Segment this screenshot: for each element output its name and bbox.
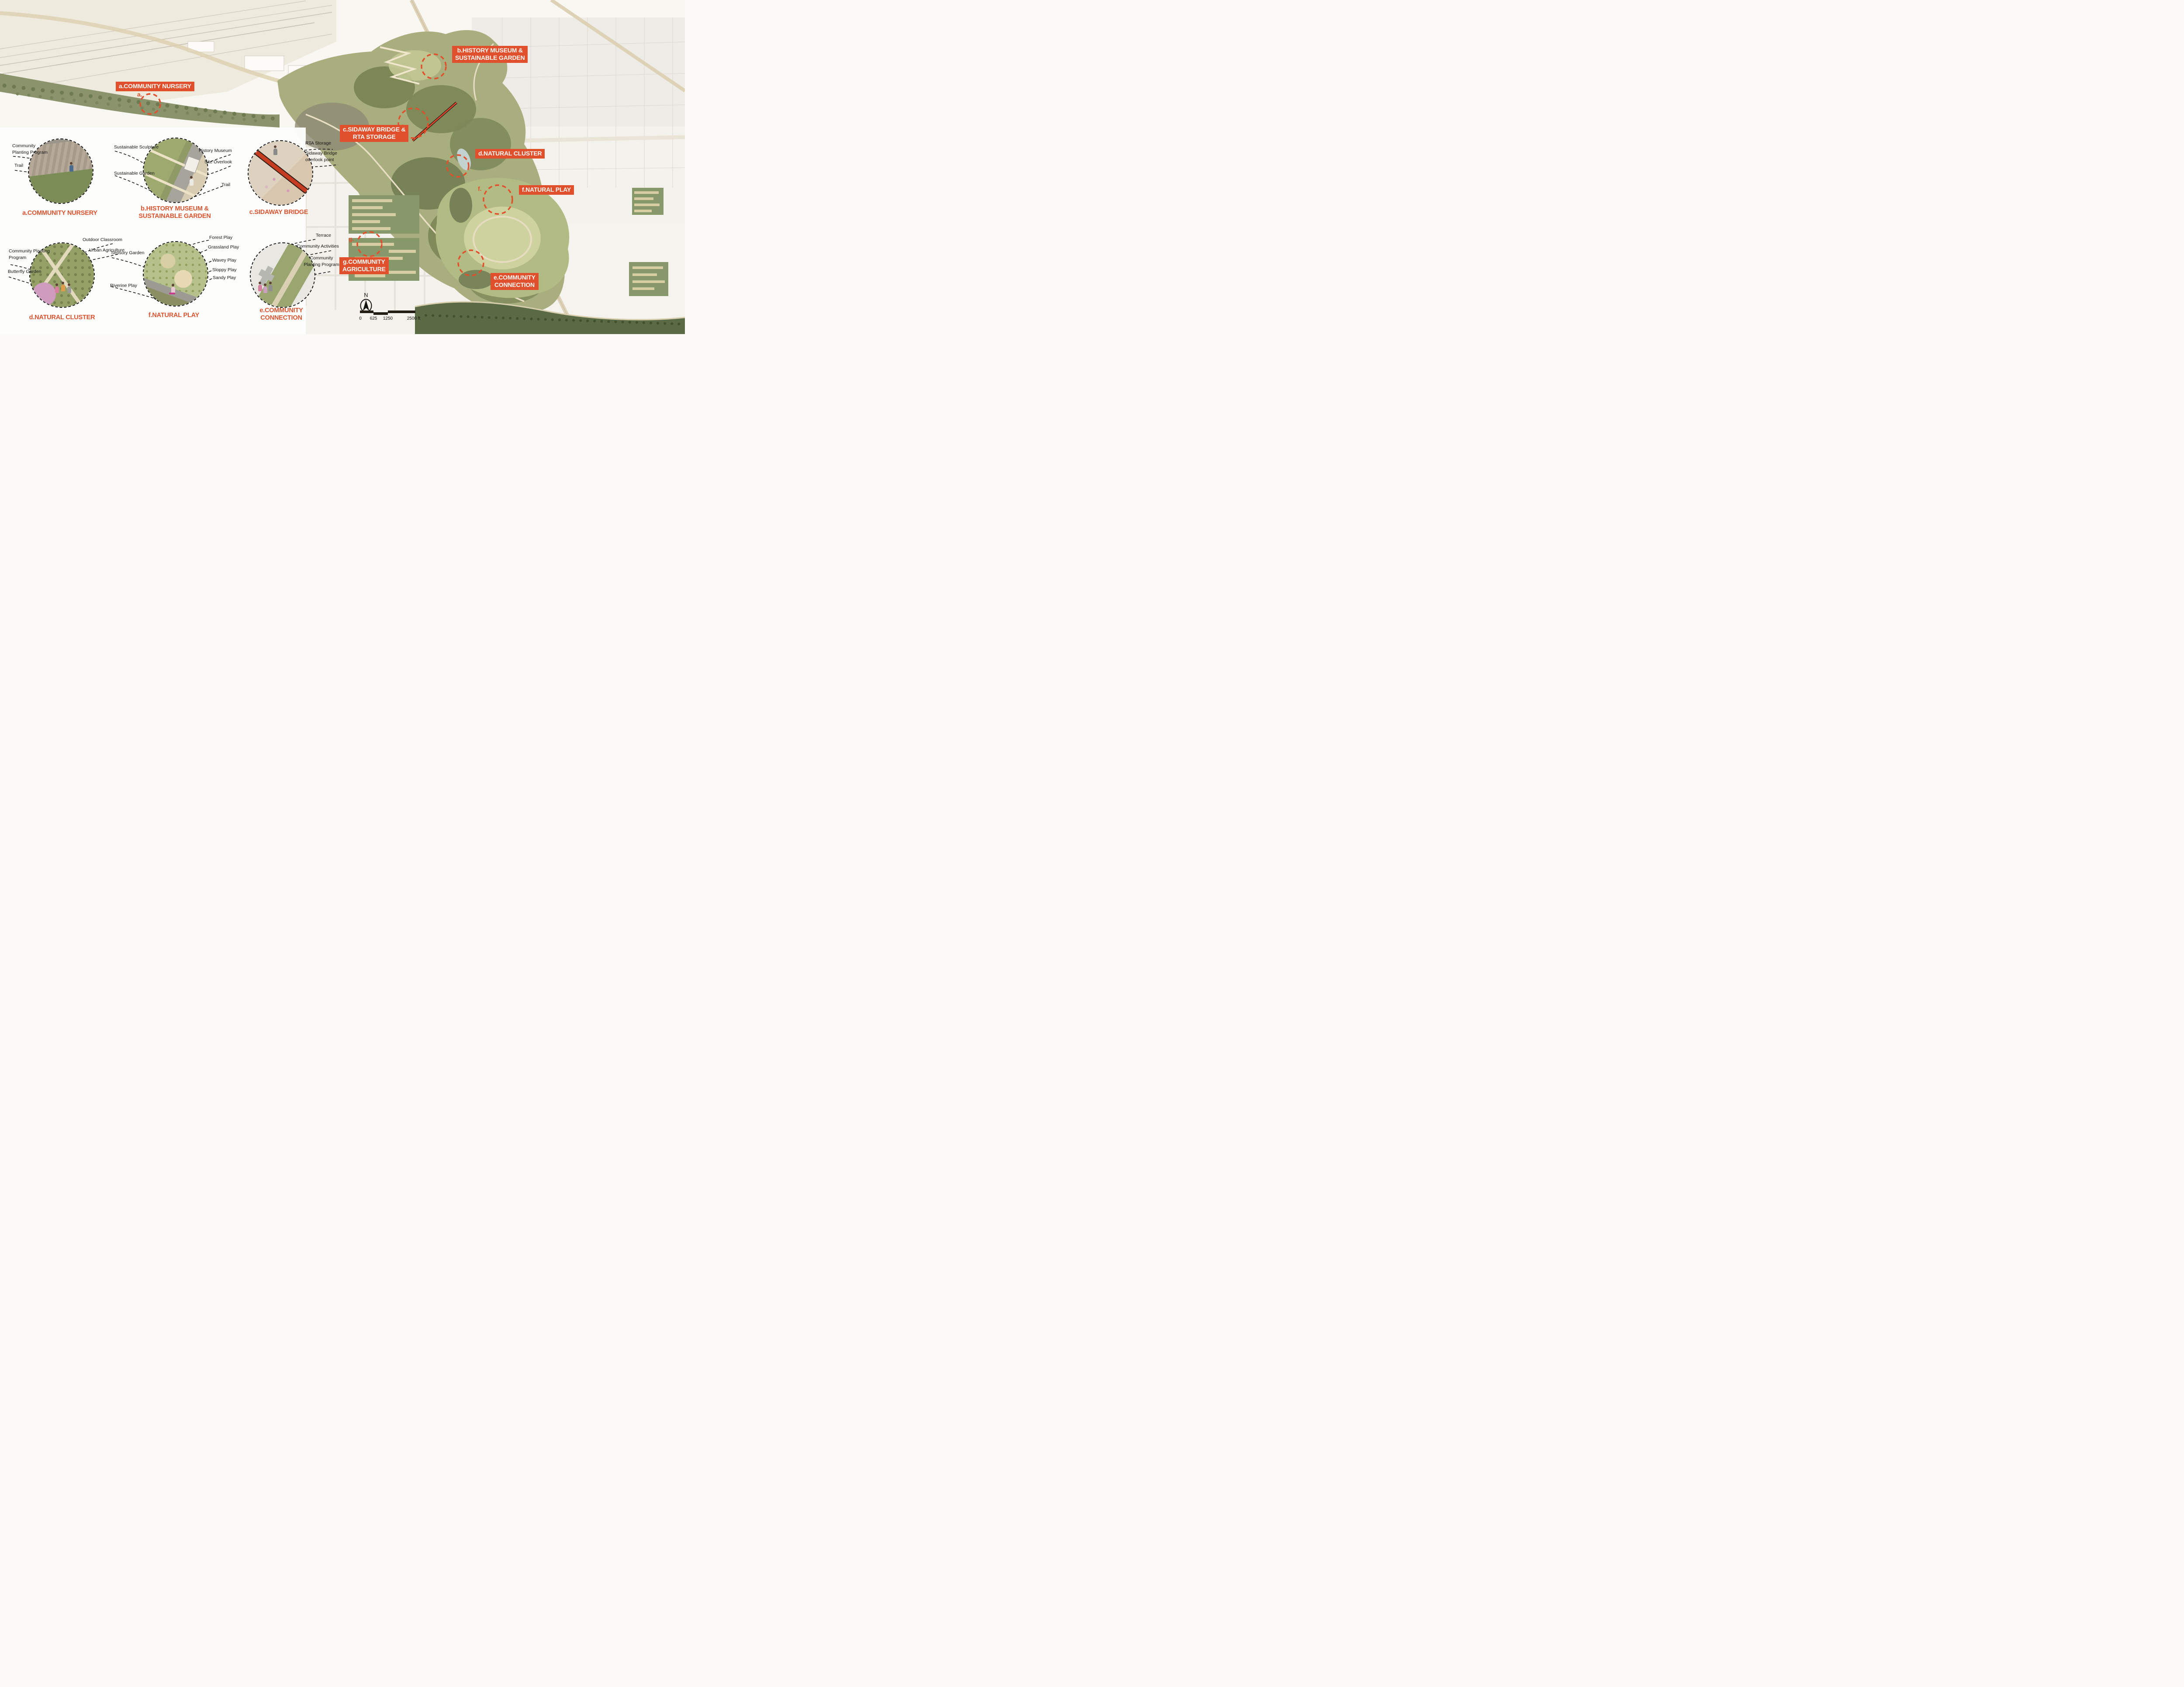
ann-e-terrace: Terrace	[316, 232, 331, 239]
ann-d-planting: Community Planting Program	[9, 248, 51, 261]
ann-f-sensory: Sensory Garden	[111, 250, 144, 256]
farmer-figure	[69, 162, 73, 172]
scale-segment	[373, 312, 388, 315]
ann-a-trail: Trail	[14, 162, 23, 169]
ann-b-museum: History Museum	[199, 148, 232, 154]
scale-tick: 625	[370, 316, 377, 321]
map-marker-g: g.	[349, 235, 354, 242]
north-label: N	[364, 292, 368, 298]
women-figure-3	[268, 282, 273, 291]
map-label-natural-play: f.NATURAL PLAY	[519, 185, 574, 195]
scale-tick: 1250	[383, 316, 393, 321]
map-marker-f: f.	[478, 185, 482, 192]
map-label-history-museum: b.HISTORY MUSEUM &SUSTAINABLE GARDEN	[452, 46, 528, 63]
ann-a-planting: Community Planting Program	[12, 143, 51, 155]
ann-b-sculpture: Sustainable Sculpture	[114, 144, 159, 151]
ann-f-forest: Forest Play	[209, 235, 232, 241]
map-marker-a: a.	[137, 91, 142, 98]
map-label-community-connection: e.COMMUNITYCONNECTION	[491, 273, 539, 290]
site-plan-artwork	[0, 0, 685, 334]
scale-tick: 2500 ft	[407, 316, 421, 321]
running-girl-figure	[189, 176, 194, 186]
ann-e-activities: Community Activities	[297, 243, 339, 250]
scale-bar: 0 625 1250 2500 ft	[360, 310, 421, 322]
museum-building	[183, 156, 200, 173]
scale-tick: 0	[359, 316, 362, 321]
ann-f-riverine: Riverine Play	[110, 283, 137, 289]
caption-community-nursery: a.COMMUNITY NURSERY	[22, 210, 97, 217]
caption-community-connection: e.COMMUNITYCONNECTION	[259, 307, 303, 322]
ann-b-trail: Trail	[221, 182, 230, 188]
masterplan-canvas: a.COMMUNITY NURSERY b.HISTORY MUSEUM &SU…	[0, 0, 685, 334]
sidaway-bridge-photo	[249, 141, 312, 205]
ann-f-wavey: Wavey Play	[212, 257, 236, 264]
caption-history-museum: b.HISTORY MUSEUM &SUSTAINABLE GARDEN	[138, 205, 211, 221]
caption-natural-play: f.NATURAL PLAY	[149, 312, 199, 319]
ann-d-butterfly: Butterfly Garden	[8, 269, 41, 275]
detail-circle-sidaway-bridge	[248, 140, 313, 206]
toddler-figure	[171, 284, 175, 293]
map-label-sidaway-bridge: c.SIDAWAY BRIDGE &RTA STORAGE	[340, 125, 408, 142]
map-label-community-nursery: a.COMMUNITY NURSERY	[116, 82, 194, 91]
detail-circle-community-connection	[250, 242, 315, 308]
bridge-red-deck	[249, 146, 311, 196]
community-connection-photo	[251, 243, 314, 307]
natural-play-photo	[144, 242, 207, 306]
page: a.COMMUNITY NURSERY b.HISTORY MUSEUM &SU…	[0, 0, 2184, 1065]
family-figure-2	[61, 282, 65, 291]
family-figure-3	[67, 283, 71, 293]
map-label-natural-cluster: d.NATURAL CLUSTER	[475, 149, 545, 159]
tricycle	[169, 293, 175, 294]
ann-d-classroom: Outdoor Classroom	[83, 237, 122, 243]
women-figure-2	[263, 283, 267, 293]
women-figure-1	[258, 282, 262, 291]
ann-b-garden: Sustainable Garden	[114, 170, 155, 177]
detail-circle-natural-play	[143, 241, 208, 307]
family-figure-1	[55, 283, 59, 293]
ann-f-sloppy: Sloppy Play	[212, 267, 236, 273]
ann-b-overlook: Site Overlook	[204, 159, 232, 166]
map-label-community-agriculture: g.COMMUNITYAGRICULTURE	[339, 257, 389, 274]
ann-e-planting: Community Planting Program	[303, 255, 340, 268]
scale-segment	[388, 310, 415, 313]
ann-f-grassland: Grassland Play	[208, 244, 239, 251]
map-marker-c: c.	[401, 122, 406, 129]
scale-segment	[360, 310, 373, 313]
ann-c-rta: RTA Storage	[305, 140, 331, 147]
caption-natural-cluster: d.NATURAL CLUSTER	[29, 314, 95, 321]
photographer-figure	[273, 145, 277, 155]
ann-c-overlook: Sidaway Bridge overlook point	[305, 150, 340, 163]
caption-sidaway-bridge: c.SIDAWAY BRIDGE	[249, 209, 308, 216]
ann-f-sandy: Sandy Play	[213, 275, 236, 281]
